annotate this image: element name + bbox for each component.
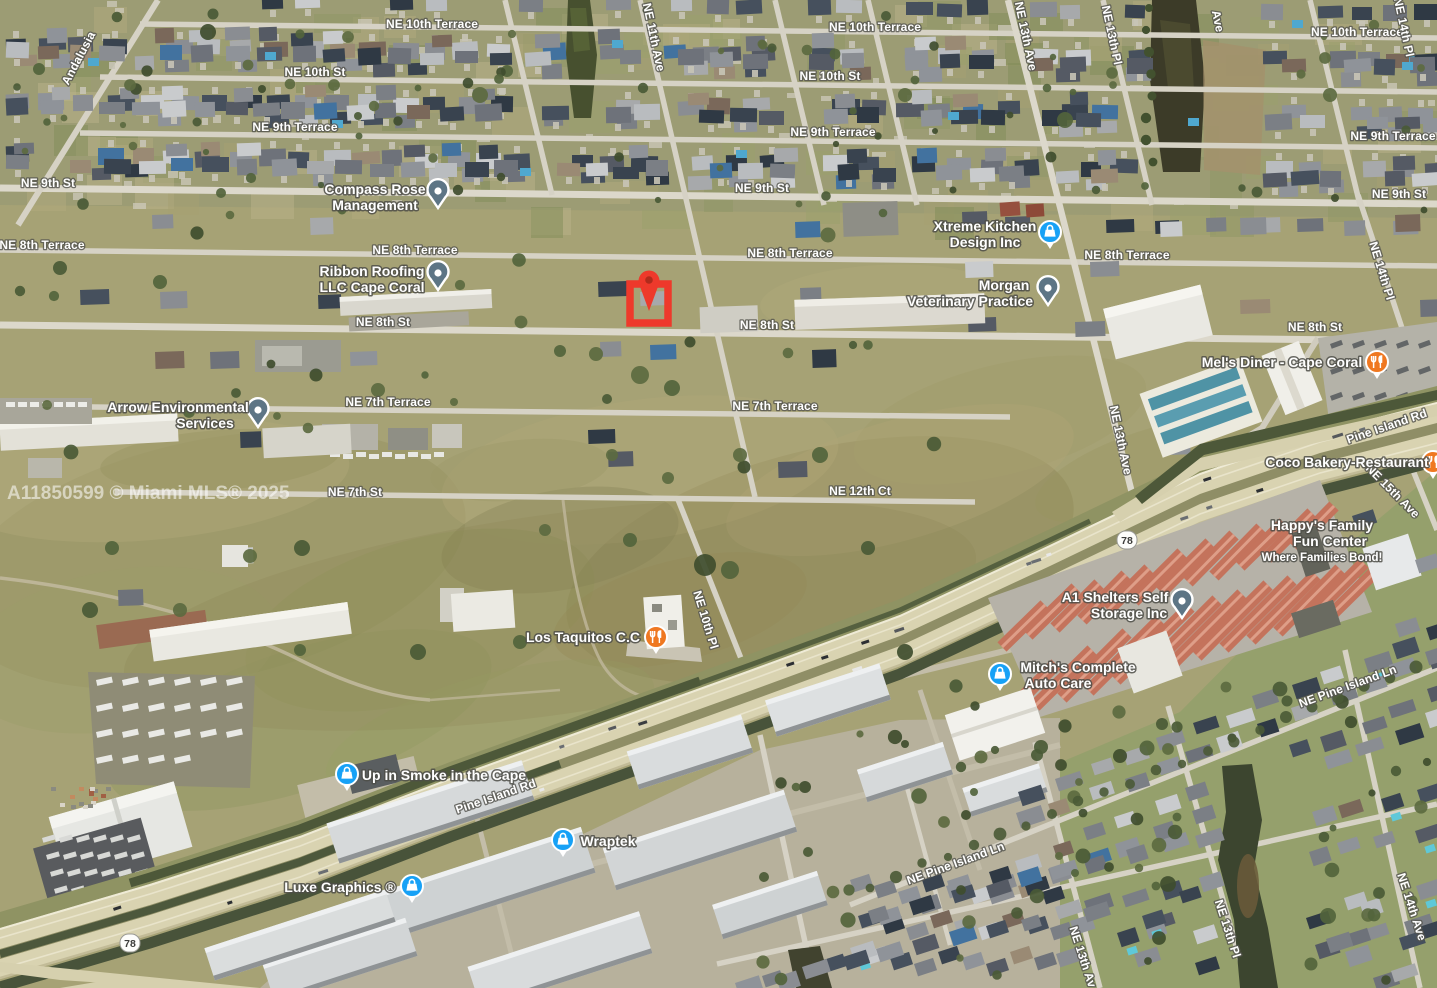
- svg-text:Fun Center: Fun Center: [1293, 533, 1367, 549]
- svg-text:NE 7th Terrace: NE 7th Terrace: [345, 395, 430, 409]
- svg-text:NE 8th St: NE 8th St: [356, 315, 410, 329]
- svg-text:Services: Services: [176, 415, 234, 431]
- svg-text:Compass Rose: Compass Rose: [324, 181, 425, 197]
- svg-text:NE 10th Terrace: NE 10th Terrace: [386, 17, 478, 31]
- svg-text:NE 12th Ct: NE 12th Ct: [829, 484, 891, 498]
- svg-text:NE 9th St: NE 9th St: [1372, 187, 1426, 201]
- svg-text:Luxe Graphics ®: Luxe Graphics ®: [284, 879, 396, 895]
- svg-text:Ribbon Roofing: Ribbon Roofing: [320, 263, 425, 279]
- svg-text:NE 9th Terrace: NE 9th Terrace: [790, 125, 875, 139]
- svg-text:NE 8th Terrace: NE 8th Terrace: [372, 243, 457, 257]
- svg-text:Management: Management: [332, 197, 418, 213]
- svg-text:NE 10th St: NE 10th St: [284, 65, 345, 79]
- svg-text:Design Inc: Design Inc: [950, 234, 1021, 250]
- svg-text:Happy's Family: Happy's Family: [1271, 517, 1373, 533]
- svg-text:Arrow Environmental: Arrow Environmental: [107, 399, 249, 415]
- svg-text:NE 10th St: NE 10th St: [799, 69, 860, 83]
- svg-text:A1 Shelters Self: A1 Shelters Self: [1062, 589, 1169, 605]
- svg-text:78: 78: [124, 938, 136, 950]
- svg-text:Coco Bakery-Restaurant: Coco Bakery-Restaurant: [1265, 454, 1429, 470]
- svg-text:Morgan: Morgan: [979, 277, 1030, 293]
- svg-text:NE 10th Terrace: NE 10th Terrace: [829, 20, 921, 34]
- svg-text:LLC Cape Coral: LLC Cape Coral: [319, 279, 424, 295]
- svg-text:NE 9th St: NE 9th St: [21, 176, 75, 190]
- svg-text:NE 9th Terrace: NE 9th Terrace: [1350, 129, 1435, 143]
- svg-text:NE 9th St: NE 9th St: [735, 181, 789, 195]
- svg-text:NE 10th Terrace: NE 10th Terrace: [1311, 25, 1403, 39]
- svg-text:NE 8th St: NE 8th St: [740, 318, 794, 332]
- svg-text:NE 8th St: NE 8th St: [1288, 320, 1342, 334]
- svg-text:NE 8th Terrace: NE 8th Terrace: [0, 238, 85, 252]
- svg-text:NE 9th Terrace: NE 9th Terrace: [252, 120, 337, 134]
- svg-text:A11850599 © Miami MLS® 2025: A11850599 © Miami MLS® 2025: [7, 483, 290, 504]
- svg-text:Xtreme Kitchen: Xtreme Kitchen: [934, 218, 1037, 234]
- svg-text:Wraptek: Wraptek: [581, 833, 636, 849]
- svg-text:NE 7th St: NE 7th St: [328, 485, 382, 499]
- svg-text:NE 8th Terrace: NE 8th Terrace: [747, 246, 832, 260]
- svg-text:Mitch's Complete: Mitch's Complete: [1020, 659, 1136, 675]
- svg-text:Storage Inc: Storage Inc: [1091, 605, 1167, 621]
- svg-text:Auto Care: Auto Care: [1025, 675, 1092, 691]
- svg-text:NE 7th Terrace: NE 7th Terrace: [732, 399, 817, 413]
- svg-text:Up in Smoke in the Cape: Up in Smoke in the Cape: [362, 767, 526, 783]
- svg-text:Mel's Diner - Cape Coral: Mel's Diner - Cape Coral: [1202, 354, 1362, 370]
- svg-text:Veterinary Practice: Veterinary Practice: [907, 293, 1033, 309]
- svg-text:Where Families Bond!: Where Families Bond!: [1262, 552, 1383, 564]
- svg-text:78: 78: [1121, 535, 1133, 547]
- svg-text:Los Taquitos C.C: Los Taquitos C.C: [526, 629, 640, 645]
- svg-text:NE 8th Terrace: NE 8th Terrace: [1084, 248, 1169, 262]
